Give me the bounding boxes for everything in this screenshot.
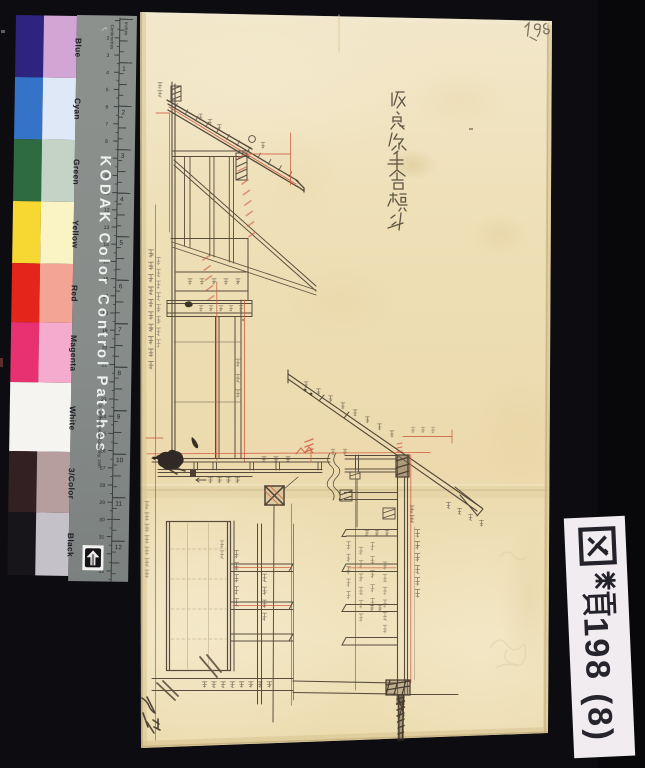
svg-text:198 (8): 198 (8) (576, 616, 619, 743)
